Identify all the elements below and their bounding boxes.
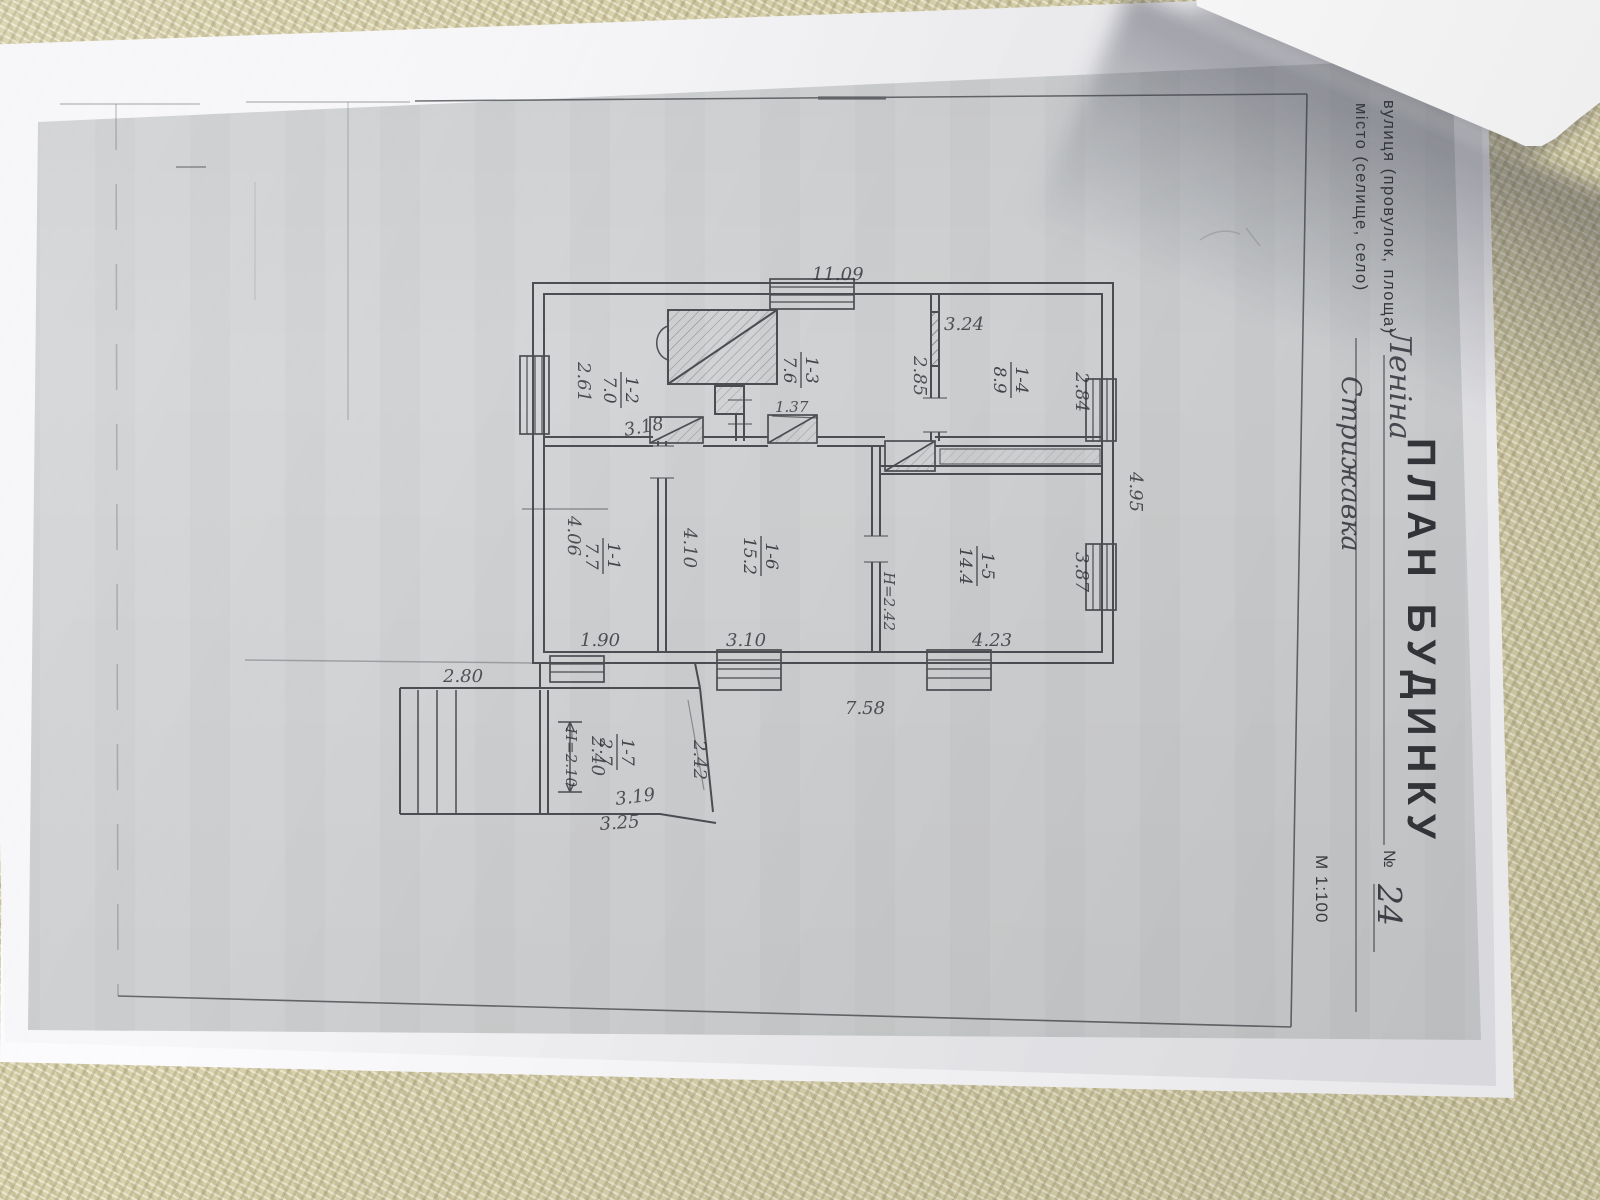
overlapping-sheet-wrap [0,0,1600,1200]
photo-of-floor-plan-document: 11.09 7.58 3.24 1.90 3.10 4.23 2.80 3.19… [0,0,1600,1200]
overlapping-paper-corner [0,0,1600,1200]
